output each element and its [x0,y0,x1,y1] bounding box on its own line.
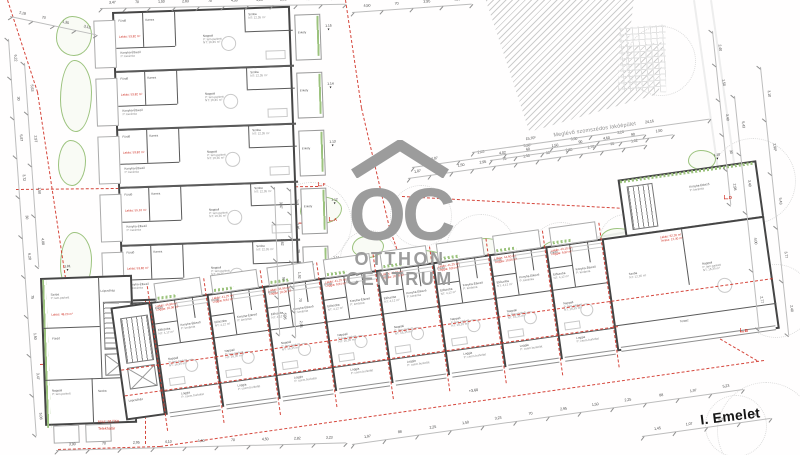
wall [246,67,248,89]
dimension-text: 2,90² [772,143,777,151]
dimension-text: 3,40 [747,179,751,186]
dimension-value: 3,47 [31,355,52,396]
marker-letter: D [729,196,732,200]
dimension-value: 2,25 [415,412,450,434]
unit-flag: 1.10▾ [714,153,721,161]
dimension-text: 4,60 [603,136,610,141]
unit-area-label: Lakás: 43,10 m²Loggia: 9,92 m² [551,247,573,257]
room-label: SzobaNT: 12,35 m² [248,13,265,20]
dimension-text: 70 [231,439,235,443]
room-label: Konyha-ÉtkezőP: kerámia [122,109,143,116]
dimension-text: 90 [631,133,635,137]
dimension-text: 3,47 [279,202,283,209]
dimension-text: 1,62 [280,239,284,246]
loggia-railing [565,350,616,362]
loggia-railing [395,374,446,386]
apartment-unit: FürdőKamraSzobaNT: 12,35 m²Konyha-Étkező… [120,182,300,246]
dimension-value: 1,50 [184,428,217,447]
wall [144,71,146,105]
loggia-railing [170,405,221,417]
room-label: LoggiaP: csem.burkolat [181,389,204,399]
marker-bracket-icon [329,217,333,221]
dimension-value: 5,63 [25,62,47,114]
stairs [120,314,154,363]
dimension-value: 3,13 [75,12,100,34]
dimension-text: 70 [41,16,46,20]
dimension-value: 4,02 [487,139,516,161]
dimension-value: 2,97 [29,113,51,165]
stair-label: Lépcsőház [100,289,115,293]
wall [249,146,297,149]
flag-triangle-icon: ▾ [329,144,336,148]
room-label: ElőszobaNT: 4,12 m² [553,271,569,280]
room-label: ElőszobaNT: 4,12 m² [214,319,230,328]
dimension-text: 3,47 [109,1,116,5]
floor-plan-canvas: Meglévő szomszédos lakóépület OC OTTHON … [0,0,800,455]
dimension-text: 70 [208,0,212,3]
dimension-value: 3,77 [778,226,800,282]
dimension-text: 5,87 [19,134,23,141]
room-label: Konyha-ÉtkezőP: kerámia [519,274,540,283]
room-label: Fürdő [52,337,60,341]
dimension-value: 90 [618,120,647,142]
dimension-value: 3,47 [100,0,125,8]
dimension-text: 2,95 [280,0,287,2]
label-line: Lakás: 55,10 m² [125,209,147,213]
dimension-value: 1,50 [32,164,54,216]
dimension-value: 4,60 [592,124,621,146]
wall [182,244,184,278]
room-label: ElőszobaNT: 4,12 m² [384,295,400,304]
wall [215,329,272,338]
wall [155,320,177,324]
dimension-value: 90 [566,127,595,149]
dimension-text: 70 [298,298,302,302]
wall [44,326,100,329]
wall [121,220,181,223]
dimension-text: 4,00 [753,238,757,245]
dimension-text: 4,10 [165,440,172,444]
dimension-text: 1,45 [654,427,661,432]
dimension-value: 1,97 [349,422,384,444]
room-label: Konyha-ÉtkezőP: kerámia [126,225,147,232]
room-label: LoggiaP: csem.burkolat [576,334,599,344]
loggia-railing [508,358,559,370]
label-line: P: kerámia [125,170,145,174]
label-line: Fürdő [120,77,128,81]
unit-area-label: Lakás: 48,20 m² [51,313,73,317]
terrace [97,136,121,185]
dimension-text: 1,50 [462,421,469,426]
label-line: NT: 12,35 m² [252,132,269,136]
marker-bracket-icon [724,195,728,199]
table-furniture [223,94,239,110]
sofa-furniture [395,344,412,354]
room-label: SzobaNT: 12,35 m² [256,245,273,252]
sofa-furniture [269,166,289,176]
room-label: Kamra [149,134,158,138]
room-label: Konyha-ÉtkezőP: kerámia [406,289,427,298]
room-label: Fürdő [124,193,132,197]
label-line: Kamra [153,250,162,254]
wall [252,241,254,263]
dimension-text: 6,20 [27,253,31,260]
section-marker: F [318,182,325,188]
parcel-annotation: Hrsz: 917/59 Telekhatár [98,420,132,435]
dimension-text: 2,40 [789,304,793,311]
dimension-value: 2,90² [767,119,791,175]
marker-bracket-icon [318,182,322,186]
unit-area-label: Lakás: 53,82 m² [127,267,149,271]
balcony-label: Erkély [298,31,306,35]
dimension-text: 70 [528,412,532,416]
dimension-text: 6,22 [13,55,17,62]
sofa-furniture [507,328,524,338]
room-label: Fürdő [126,251,134,255]
dimension-value: 3,23 [480,403,515,425]
parcel-number: Hrsz: 917/59 [98,420,119,425]
room-label: LoggiaP: csem.burkolat [294,374,317,384]
label-line: Fürdő [124,193,132,197]
dimension-text: 1,50 [37,187,41,194]
dimension-value: 4,30 [222,0,247,6]
dimension-text: 2,18 [18,11,25,16]
dimension-text: 30 [16,96,20,100]
wall [324,297,346,301]
dimension-text: 70 [394,2,398,6]
dimension-text: 88 [659,394,663,398]
watermark: OC OTTHON CENTRUM [344,140,456,289]
sofa-furniture [282,360,299,370]
wall [142,13,144,47]
marker-letter: A [334,218,337,222]
flag-triangle-icon: ▾ [327,86,334,90]
dimension-value: 1,50 [447,408,482,430]
room-label: SzobaP: lam.parkett [51,293,70,300]
dimension-text: 3,77 [783,251,787,258]
wall [150,245,152,279]
section-marker: B [740,328,748,334]
label-line: Fürdő [126,251,134,255]
label-line: NT: 12,35 m² [254,190,271,194]
room-label: Szoba [98,390,107,394]
sofa-furniture [265,50,285,60]
room-label: Konyha-ÉtkezőP: kerámia [180,321,201,330]
dimension-text: 3,47 [35,373,39,380]
dimension-text: 4,50 [363,4,370,8]
loggia-railing [282,389,333,401]
wall [494,273,516,277]
hedge [60,60,92,132]
unit-flag: 1.01▾ [64,265,71,272]
boundary-line [715,336,756,361]
unit-area-label: Lakás: 53,82 m² [123,151,145,155]
dimension-text: 30 [729,150,733,154]
room-label: Kamra [151,192,160,196]
wall [117,104,177,107]
unit-area-label: Lakás: 55,10 m² [125,209,147,213]
wall [92,378,95,426]
dimension-value: 2,95 [411,0,442,8]
room-label: SzobaNT: 12,35 m² [252,129,269,136]
dimension-text: 2,95 [295,222,299,229]
dimension-value: 2,25 [610,385,645,407]
dimension-value: 5,23 [708,371,743,393]
loggia-railing [452,366,503,378]
dimension-value: 70 [124,0,149,8]
wall [115,46,175,49]
section-marker: D [724,195,732,201]
dimension-text: 4,50 [262,438,269,442]
wall [250,183,252,205]
dimension-text: 3,23 [494,416,501,421]
dimension-text: 2,98 [732,183,736,190]
dimension-text: 70 [296,248,300,252]
dimension-text: 3,40 [725,114,729,121]
room-label: SzobaNT: 12,35 m² [250,71,267,78]
room-label: ElőszobaNT: 4,12 m² [327,303,343,312]
boundary-label: Telekhatár [98,427,119,432]
room-label: LoggiaP: csem.burkolat [350,366,373,376]
dimension-value: 4,08 [36,215,58,267]
label-line: Szoba [98,390,107,394]
dimension-value: 70 [512,399,547,421]
label-line: Lakás: 53,82 m² [123,151,145,155]
dimension-text: 2,95 [133,441,140,445]
hedge [58,140,86,186]
wall [178,128,180,162]
label-line: NT: 12,35 m² [256,248,273,252]
label-line: P: lam.parkett [52,392,71,396]
label-line: NT: 16,35 m² [203,41,222,45]
apartment-unit: FürdőKamraSzobaNT: 12,35 m²Konyha-Étkező… [116,66,296,130]
dimension-text: 4,30 [453,0,460,2]
dimension-text: 70 [102,442,106,446]
dimension-text: 60 [526,148,530,152]
dimension-value: 5,43 [735,94,759,154]
dimension-value: 1,92 [294,262,313,287]
dimension-text: 3,23 [326,436,333,440]
dimension-text: 1,50 [197,439,204,443]
dimension-value: 4,50 [351,0,382,12]
sofa-furniture [169,376,186,386]
dimension-text: 1,97 [364,435,371,440]
table-furniture [225,152,241,168]
wall [244,9,246,31]
balcony-label: Erkély [302,147,310,151]
apartment-unit: FürdőKamraSzobaNT: 12,35 m²Konyha-Étkező… [114,8,294,72]
dimension-text: 1,07 [686,422,693,427]
dimension-value: 1,50 [28,316,49,357]
dimension-text: 3,90 [69,443,76,447]
wall [245,30,293,33]
dimension-text: 2,25 [429,425,436,430]
unit-flag: 1.15▾ [325,24,332,31]
terrace [95,78,119,127]
unit-area-label: Lakás: 41,25 m²Loggia: 9,84 m² [212,294,234,304]
dimension-chain: 3,47701,502,83704,301,052,95703,23 [100,0,345,9]
watermark-line2: CENTRUM [344,269,456,289]
dimension-value: 60 [514,135,543,157]
dimension-value: 4,30 [440,0,471,6]
room-label: Konyha-ÉtkezőP: kerámia [120,51,141,58]
room-label: Lépcsőház [128,398,143,403]
room-label: NappaliP: lam.parkett [52,389,71,396]
dimension-text: 3,23 [329,0,336,1]
apartment-unit: FürdőKamraSzobaNT: 12,35 m²Konyha-Étkező… [118,124,298,188]
dimension-value: 88 [643,380,678,402]
room-label: LoggiaP: csem.burkolat [237,382,260,392]
table-furniture [227,210,243,226]
dimension-value: 2,95 [292,213,311,238]
label-line: Lakás: 48,20 m² [51,313,73,317]
loggia-railing [226,397,277,409]
dimension-value: 70 [198,0,223,6]
dimension-value: 70 [217,427,250,446]
unit-area-label: Lakás: 53,82 m² [119,35,141,39]
room-label: NappaliP: lam.parkettNT: 16,35 m² [209,208,228,219]
room-label: ElőszobaNT: 4,12 m² [158,327,174,336]
label-line: P: kerámia [121,54,141,58]
dimension-value: 70 [293,238,312,263]
label-line: Erkély [300,89,308,93]
balcony-label: Erkély [300,89,308,93]
dimension-text: 5,23 [722,384,729,389]
dimension-value: 2,82 [281,425,314,444]
room-label: Fürdő [122,135,130,139]
dimension-text: 70 [306,0,310,1]
dimension-value: 1,50 [540,131,569,153]
dimension-text: 1,05 [256,0,263,2]
room-label: SzobaNT: 12,35 m² [254,187,271,194]
watermark-line1: OTTHON [344,249,456,269]
dimension-text: 88 [398,430,402,434]
dimension-value: 70 [294,287,313,312]
sofa-furniture [267,108,287,118]
label-line: P: lam.parkett [51,296,70,300]
dimension-value: 2,83 [173,0,198,7]
label-line: P: kerámia [123,112,143,116]
dimension-text: 4,30 [231,0,238,3]
unit-flag: 1.14▾ [327,82,334,89]
dimension-text: 2,97 [33,136,37,143]
dimension-text: 3,13 [83,25,90,30]
room-label: LoggiaP: csem.burkolat [407,358,430,368]
dimension-value: 4,50 [249,426,282,445]
dimension-text: 1,97 [690,389,697,394]
dimension-text: 1,92 [297,272,301,279]
wall [550,265,572,269]
dimension-value: 2,95 [271,0,296,5]
left-wing: FürdőKamraSzobaNT: 12,35 m²Konyha-Étkező… [112,6,300,302]
label-line: Erkély [302,147,310,151]
level-mark: +3,60 [469,389,479,394]
room-label: Konyha-ÉtkezőP: kerámia [237,313,258,322]
dimension-text: 70 [294,199,298,203]
dimension-text: 2,95 [423,0,430,4]
label-line: Erkély [298,31,306,35]
marker-letter: F [323,183,326,187]
dimension-value: 1,97 [675,376,710,398]
label-line: Lépcsőház [128,398,143,403]
table-furniture [221,36,237,52]
room-label: NappaliP: lam.parkettNT: 16,35 m² [207,150,226,161]
dimension-text: 75 [30,295,34,299]
wall [158,337,215,346]
room-label: LoggiaP: csem.burkolat [463,350,486,360]
label-line: Fürdő [118,20,126,24]
flag-triangle-icon: ▾ [325,28,332,32]
room-label: Konyha-ÉtkezőP: kerámia [575,266,596,275]
room-label: ElőszobaNT: 4,12 m² [497,279,513,288]
room-label: Konyha-ÉtkezőP: kerámia [350,297,371,306]
dimension-value: 70 [291,188,310,213]
dimension-value: 1,50 [149,0,174,7]
wall [211,313,233,317]
sofa-furniture [564,320,581,330]
boundary-line [345,0,362,108]
room-label: Kamra [153,250,162,254]
label-line: Lakás: 53,82 m² [127,267,149,271]
tree [626,26,696,96]
label-line: Fürdő [52,337,60,341]
dimension-value: 3,23 [313,424,346,443]
label-line: NT: 16,35 m² [205,99,224,103]
wall [553,282,610,291]
dimension-text: 2,83 [182,0,189,4]
label-line: Fürdő [122,135,130,139]
wall [119,162,179,165]
label-line: NT: 16,35 m² [207,157,226,161]
dimension-text: 1,50 [158,0,165,4]
dimension-text: 70 [135,1,139,5]
label-line: NT: 12,35 m² [250,74,267,78]
dimension-text: 3,10 [766,90,770,97]
wall [440,298,497,307]
wall [327,314,384,323]
label-line: Kamra [145,19,154,23]
dimension-value: 3,23 [320,0,345,4]
dimension-text: 2,77 [759,296,763,303]
dimension-text: 2,95 [479,160,486,165]
sofa-furniture [451,336,468,346]
dimension-value: 5,08 [34,395,55,436]
dimension-chain: 2,18701,353,13 [10,8,98,35]
label-line: Lépcsőház [100,289,115,293]
sofa-furniture [225,368,242,378]
wall [248,125,250,147]
dimension-value: 2,95 [295,312,314,337]
marker-letter: B [745,329,748,333]
dimension-value: 1,45 [639,414,674,436]
dimension-text: 1,50 [721,79,725,86]
dimension-value: 70 [296,0,321,5]
wall [146,129,148,163]
wall [497,290,554,299]
room-label: LoggiaP: csem.burkolat [520,342,543,352]
room-label: Kamra [147,76,156,80]
dimension-value: 4,10 [152,429,185,448]
dimension-text: 4,02 [499,151,506,156]
dimension-value: 1,50 [644,116,673,138]
dimension-chain: 3,90702,954,101,50704,502,823,23 [56,434,346,451]
label-line: P: kerámia [127,228,147,232]
dimension-text: 2,95 [559,407,566,412]
wall [247,88,295,91]
dimension-text: 1,50 [656,129,663,134]
label-line: NT: 16,35 m² [209,215,228,219]
dimension-text: 1,35 [61,20,68,25]
